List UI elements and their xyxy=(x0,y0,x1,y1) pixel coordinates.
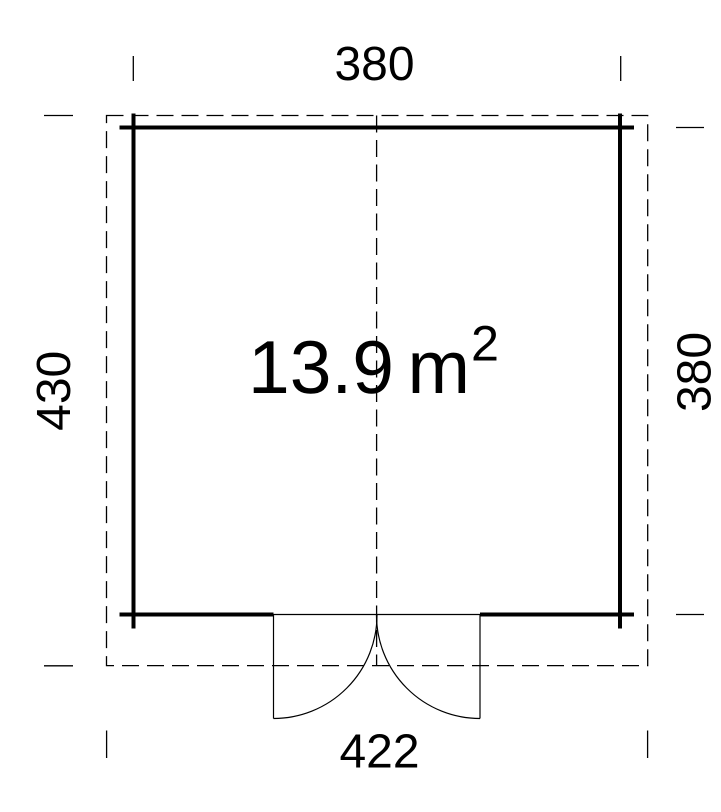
svg-text:380: 380 xyxy=(669,332,721,412)
svg-text:13.9: 13.9 xyxy=(248,325,394,409)
svg-text:422: 422 xyxy=(339,726,419,779)
svg-text:2: 2 xyxy=(471,316,499,372)
svg-text:380: 380 xyxy=(334,38,414,91)
svg-text:430: 430 xyxy=(28,351,81,431)
svg-text:m: m xyxy=(408,325,470,409)
